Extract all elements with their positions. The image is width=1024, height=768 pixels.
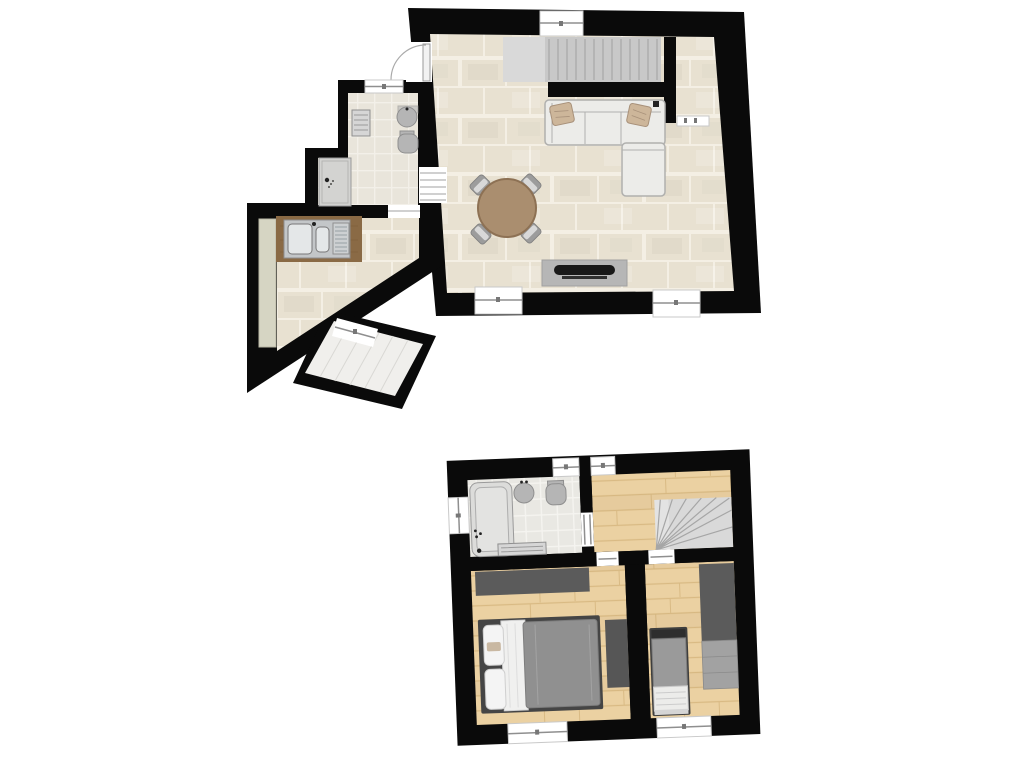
main-staircase bbox=[503, 37, 661, 82]
shower-head-icon bbox=[325, 178, 329, 182]
kitchen-cabinet-strip bbox=[259, 219, 276, 347]
top-window-bath bbox=[553, 458, 580, 477]
bathroom-sink bbox=[397, 106, 418, 127]
sofa-cushion-dark bbox=[653, 101, 659, 107]
nook-sill bbox=[677, 116, 709, 126]
kitchen-threshold bbox=[388, 205, 420, 218]
tv-stand bbox=[562, 276, 607, 279]
upper-floor-plan bbox=[247, 8, 761, 409]
floor-plan-canvas bbox=[0, 0, 1024, 768]
sofa-pillow-left bbox=[549, 102, 575, 126]
tv-console bbox=[542, 260, 627, 286]
living-bottom-window-left bbox=[475, 287, 522, 314]
living-top-window bbox=[540, 11, 583, 36]
staircase-landing bbox=[503, 37, 545, 82]
wall-below-stairs bbox=[548, 82, 668, 97]
bottom-window-bedroom-right bbox=[657, 716, 712, 738]
living-bottom-window-right bbox=[653, 290, 700, 317]
single-bed bbox=[649, 627, 690, 716]
bathroom-window bbox=[365, 80, 403, 93]
bed-duvet bbox=[523, 619, 600, 708]
single-bed-headboard bbox=[651, 629, 685, 638]
bathroom2-radiator bbox=[498, 542, 546, 556]
top-window-hall bbox=[591, 456, 616, 475]
pillow-accent bbox=[487, 642, 501, 652]
toilet2 bbox=[546, 480, 567, 505]
steps-to-living-room bbox=[419, 167, 447, 203]
kitchen-faucet bbox=[312, 222, 316, 226]
dining-table bbox=[478, 179, 536, 237]
lower-floor-plan bbox=[447, 449, 761, 745]
bedroom-right-door bbox=[648, 549, 675, 564]
double-bed bbox=[478, 615, 604, 714]
wardrobe-bedroom-left bbox=[475, 568, 590, 596]
shower-stall bbox=[319, 158, 351, 206]
wardrobe-bedroom-right bbox=[699, 563, 737, 641]
single-bed-duvet bbox=[652, 638, 688, 689]
dining-set bbox=[469, 173, 543, 246]
dark-rug-bedroom-left bbox=[605, 619, 630, 688]
tv-screen bbox=[554, 265, 615, 275]
left-window-bath bbox=[448, 497, 469, 534]
bedroom-left-door bbox=[596, 551, 619, 566]
floor-plan-svg bbox=[0, 0, 1024, 768]
bed-pillow bbox=[485, 669, 507, 710]
bathroom2-door bbox=[581, 512, 594, 546]
dresser-bedroom-right bbox=[702, 640, 739, 689]
winder-staircase bbox=[654, 497, 733, 550]
sofa-pillow-right bbox=[626, 103, 652, 127]
sink-basin-small bbox=[316, 227, 329, 252]
sink-basin-large bbox=[288, 224, 312, 254]
kitchen-sink-unit bbox=[284, 220, 350, 258]
entrance-door bbox=[391, 42, 432, 82]
bottom-window-bedroom-left bbox=[508, 721, 568, 743]
nook-wall bbox=[664, 37, 676, 123]
bathroom-radiator bbox=[352, 110, 370, 136]
